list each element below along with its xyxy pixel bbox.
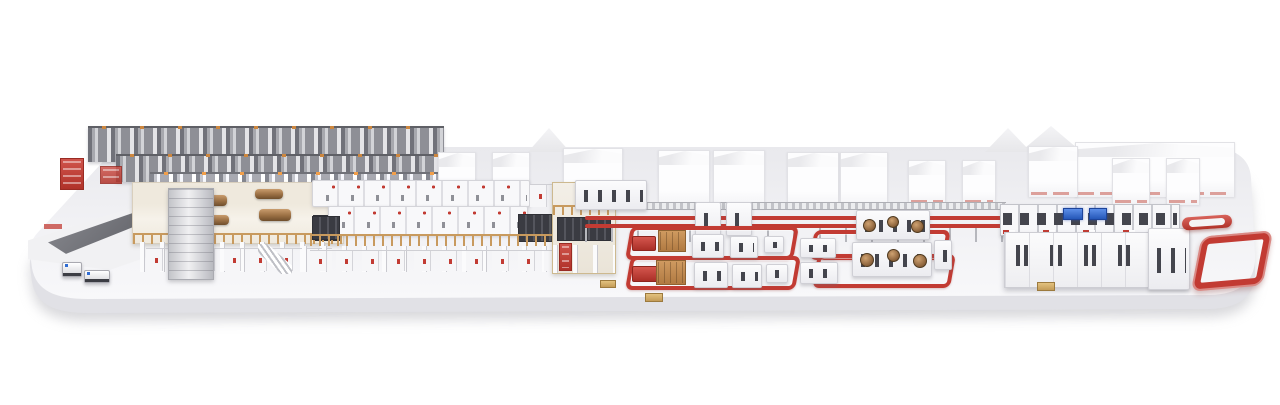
print-roll-4 <box>860 253 874 267</box>
machine-tower-11 <box>1112 158 1150 205</box>
machine-tower-8 <box>908 160 946 205</box>
machine-tower-5 <box>713 150 765 208</box>
agv-2 <box>84 270 110 283</box>
print-roll-5 <box>887 249 900 262</box>
machine-tower-10 <box>1028 146 1078 197</box>
feeder-cabinet-2a <box>800 238 836 258</box>
prefeeder-1 <box>658 230 686 252</box>
print-roll-1 <box>863 219 876 232</box>
corrugator-floor-cabinets <box>310 250 570 271</box>
machine-tower-9 <box>962 160 996 205</box>
small-red-cabinet <box>100 166 122 184</box>
floor-red-marking <box>44 224 62 229</box>
print-roll-6 <box>913 254 927 268</box>
pallet-3 <box>645 293 663 302</box>
converting-machine-1a <box>692 234 724 258</box>
flexo-printer-1 <box>856 210 930 240</box>
feeder-cabinet-2b <box>800 262 838 284</box>
print-roll-3 <box>911 220 924 233</box>
background-hall-right <box>1075 142 1235 197</box>
pallet-1 <box>1037 282 1055 291</box>
aux-unit-1b <box>766 264 788 283</box>
machine-tower-7 <box>840 152 888 208</box>
factory-line-render <box>0 0 1280 405</box>
machine-tower-4 <box>658 150 710 208</box>
overhead-roller-conveyor <box>596 202 1006 210</box>
dry-end-cabinet-row <box>575 180 647 210</box>
print-roll-2 <box>887 216 899 228</box>
machine-tower-12 <box>1166 158 1200 205</box>
red-stacker-2 <box>632 266 658 282</box>
paper-roll-3 <box>259 209 291 221</box>
reel-splicer-tower <box>168 188 214 280</box>
flexo-printer-2 <box>852 242 932 277</box>
machine-tower-6 <box>787 152 839 208</box>
agv-1 <box>62 262 82 277</box>
corrugator-lower-tier <box>328 206 528 236</box>
aux-unit-1a <box>764 236 784 253</box>
bridge-rail-upper <box>585 216 1005 220</box>
corrugator-mezzanine-rail <box>310 234 580 246</box>
pallet-2 <box>600 280 616 288</box>
control-screen-2 <box>1089 208 1107 220</box>
converting-machine-1c <box>694 262 728 288</box>
red-stacker-1 <box>632 236 656 251</box>
tower-columns <box>553 245 615 273</box>
aux-unit-2 <box>934 240 952 270</box>
prefeeder-2 <box>656 260 686 285</box>
paper-roll-2 <box>255 189 283 199</box>
palletizer-tall-cabinets <box>1148 228 1190 290</box>
corrugator-upper-tier <box>312 180 530 207</box>
converting-machine-1b <box>730 236 758 258</box>
control-screen-1 <box>1063 208 1083 220</box>
converting-machine-1d <box>732 264 762 288</box>
reel-delivery-red-unit <box>60 158 84 190</box>
